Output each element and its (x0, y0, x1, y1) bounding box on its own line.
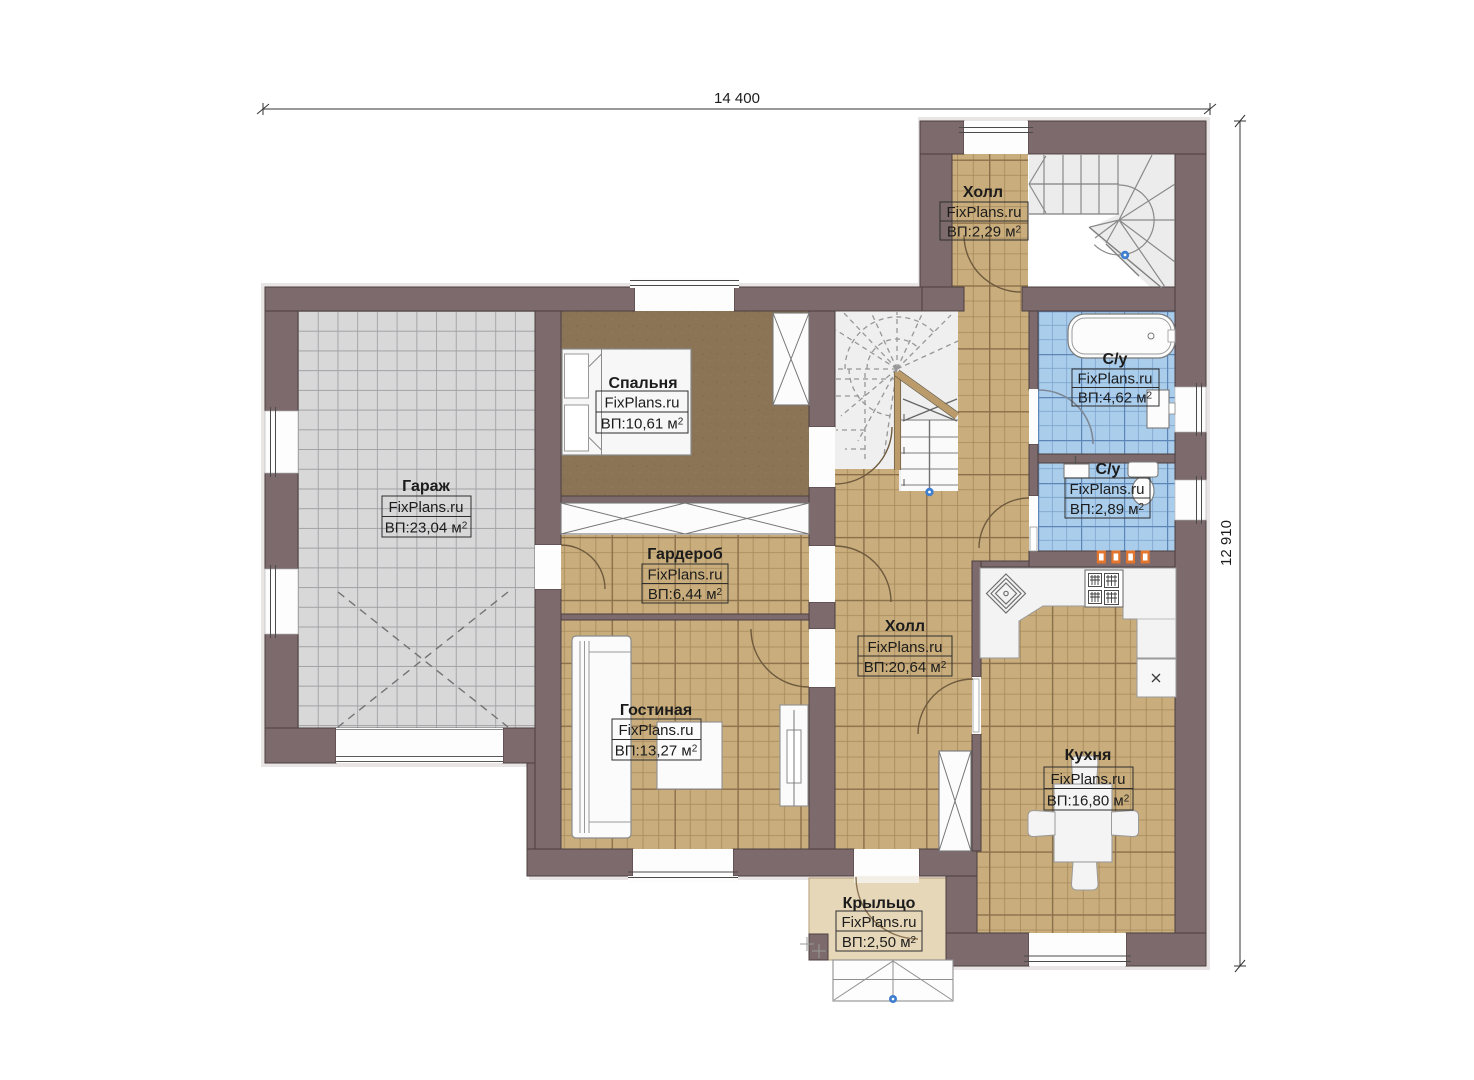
svg-text:ВП:23,04 м2: ВП:23,04 м2 (385, 520, 468, 537)
svg-text:FixPlans.ru: FixPlans.ru (1069, 481, 1144, 498)
svg-text:ВП:20,64 м2: ВП:20,64 м2 (864, 659, 947, 676)
svg-text:ВП:16,80 м2: ВП:16,80 м2 (1047, 793, 1130, 810)
svg-text:FixPlans.ru: FixPlans.ru (647, 567, 722, 584)
svg-text:FixPlans.ru: FixPlans.ru (841, 914, 916, 931)
svg-text:Холл: Холл (885, 618, 925, 635)
svg-text:FixPlans.ru: FixPlans.ru (946, 204, 1021, 221)
svg-text:ВП:4,62 м2: ВП:4,62 м2 (1078, 390, 1153, 407)
svg-text:Спальня: Спальня (608, 375, 677, 392)
svg-text:FixPlans.ru: FixPlans.ru (618, 722, 693, 739)
svg-text:ВП:10,61 м2: ВП:10,61 м2 (601, 416, 684, 433)
svg-text:Крыльцо: Крыльцо (843, 895, 916, 912)
svg-text:ВП:6,44 м2: ВП:6,44 м2 (648, 586, 723, 603)
svg-text:Холл: Холл (963, 184, 1003, 201)
svg-text:С/у: С/у (1096, 461, 1121, 478)
svg-text:ВП:2,29 м2: ВП:2,29 м2 (947, 224, 1022, 241)
svg-text:14 400: 14 400 (714, 90, 760, 107)
svg-text:FixPlans.ru: FixPlans.ru (867, 639, 942, 656)
svg-text:Гардероб: Гардероб (647, 546, 723, 563)
svg-text:ВП:2,50 м2: ВП:2,50 м2 (842, 934, 917, 951)
svg-text:12 910: 12 910 (1218, 520, 1235, 566)
svg-text:Гостиная: Гостиная (620, 702, 692, 719)
svg-text:С/у: С/у (1103, 351, 1128, 368)
svg-text:Гараж: Гараж (402, 478, 450, 495)
svg-text:ВП:2,89 м2: ВП:2,89 м2 (1070, 501, 1145, 518)
svg-text:FixPlans.ru: FixPlans.ru (388, 499, 463, 516)
svg-text:ВП:13,27 м2: ВП:13,27 м2 (615, 743, 698, 760)
svg-text:FixPlans.ru: FixPlans.ru (1050, 771, 1125, 788)
svg-text:FixPlans.ru: FixPlans.ru (1077, 371, 1152, 388)
svg-text:Кухня: Кухня (1065, 747, 1112, 764)
svg-text:FixPlans.ru: FixPlans.ru (604, 395, 679, 412)
